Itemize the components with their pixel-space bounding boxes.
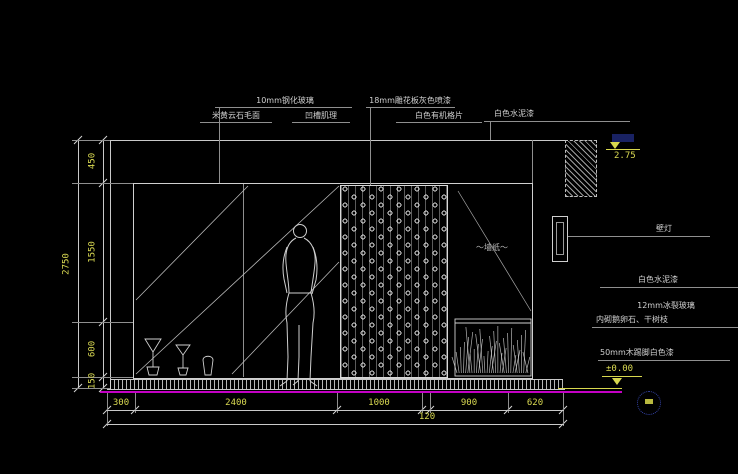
wallpaper-text: ～墙纸～: [476, 243, 508, 252]
slats-label-underline: [396, 122, 482, 123]
pebbles-underline: [592, 327, 738, 328]
white-slats-label: 白色有机格片: [415, 111, 463, 120]
wall-lamp-label: 壁灯: [656, 224, 672, 233]
dimension-ticks: [74, 136, 567, 428]
dry-branches-hatch: [452, 326, 530, 373]
person-figure: [280, 225, 317, 387]
skirting-label: 50mm木踢脚白色漆: [600, 348, 674, 357]
cement-right-underline: [600, 287, 738, 288]
floor-elevation-underline: [602, 376, 642, 377]
ceiling-marker-smudge: [612, 134, 634, 142]
floor-elevation-value: ±0.00: [606, 365, 633, 374]
decor-vases: [145, 339, 213, 375]
groove-label-underline: [292, 122, 350, 123]
ceiling-elevation-underline: [606, 149, 640, 150]
dim-left-150: 150: [89, 373, 98, 389]
skirting-underline: [598, 360, 730, 361]
ext-line-ceiling: [72, 140, 110, 141]
dim-bottom-2400: 2400: [225, 399, 247, 408]
panel-label-underline: [366, 107, 455, 108]
bottom-dim-line: [107, 410, 564, 411]
floor-elevation-marker-icon: [612, 378, 622, 385]
watermark-core-icon: [645, 399, 653, 404]
marble-label-underline: [200, 122, 272, 123]
panel-leader-line: [370, 108, 371, 185]
ext-line-skirting-top: [72, 377, 133, 378]
dim-bottom-620: 620: [527, 399, 543, 408]
dim-left-600: 600: [89, 341, 98, 357]
ceiling-elevation-marker-icon: [610, 142, 620, 149]
ceiling-elevation-value: 2.75: [614, 152, 636, 161]
bottom-overall-dim-line: [107, 424, 564, 425]
dim-left-450: 450: [89, 153, 98, 169]
cement-top-underline: [484, 121, 630, 122]
dim-left-overall-2750: 2750: [63, 253, 72, 275]
mirror-diagonal-lines: [136, 186, 339, 374]
cement-right-label: 白色水泥漆: [638, 275, 678, 284]
carved-panel-label: 18mm雕花板灰色喷漆: [369, 96, 451, 105]
dim-bottom-gap-120: 120: [419, 413, 435, 422]
glass-label: 10mm钢化玻璃: [256, 96, 314, 105]
dim-left-1550: 1550: [89, 241, 98, 263]
ext-line-wall-top: [72, 183, 133, 184]
crackle-glass-label: 12mm冰裂玻璃: [637, 301, 695, 310]
ext-line-shelf: [72, 322, 133, 323]
cement-top-label: 白色水泥漆: [494, 109, 534, 118]
groove-label: 凹槽肌理: [305, 111, 337, 120]
marble-label: 米黄云石毛面: [212, 111, 260, 120]
cad-viewport[interactable]: 10mm钢化玻璃 米黄云石毛面 凹槽肌理 18mm雕花板灰色喷漆 白色有机格片 …: [0, 0, 738, 474]
glass-label-underline: [215, 107, 352, 108]
left-overall-dim-line: [78, 140, 79, 389]
dim-bottom-1000: 1000: [368, 399, 390, 408]
cement-top-leader: [490, 122, 491, 140]
left-dim-line: [103, 140, 104, 389]
lamp-leader-line: [568, 236, 710, 237]
dim-bottom-900: 900: [461, 399, 477, 408]
dim-bottom-300: 300: [113, 399, 129, 408]
pebbles-label: 内砌鹅卵石、干树枝: [596, 315, 668, 324]
